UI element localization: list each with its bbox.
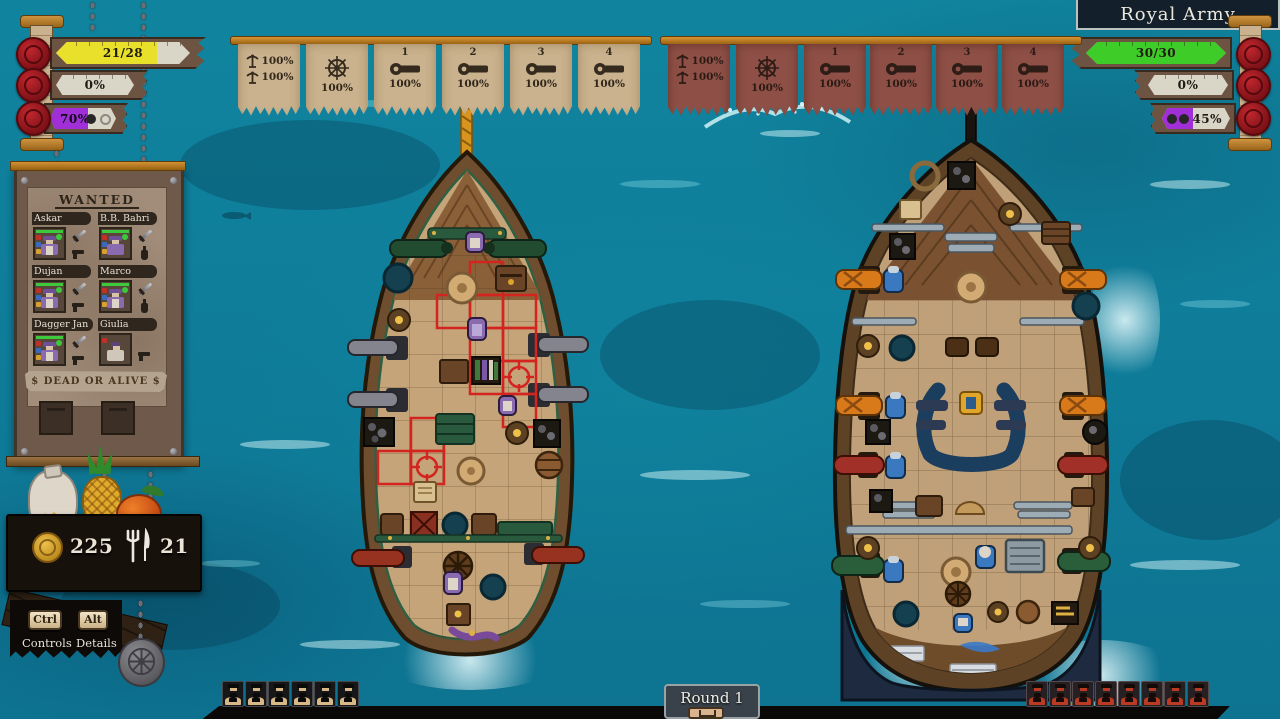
crew-figure <box>466 232 484 252</box>
wanted-title: WANTED <box>28 192 166 207</box>
ally-crew-tile[interactable] <box>268 681 290 707</box>
wanted-entry[interactable]: B.B. Bahri <box>98 212 164 262</box>
wanted-name: Giulia <box>98 318 157 331</box>
cannon-icon <box>592 58 626 78</box>
enemy-crew-tile[interactable] <box>1049 681 1071 707</box>
enemy-crew-tile[interactable] <box>1095 681 1117 707</box>
wheel-icon <box>753 54 781 82</box>
sails-bar-value: 0% <box>56 75 134 95</box>
wanted-portrait <box>99 280 132 313</box>
banner-cannon-3: 3 100% <box>510 44 572 118</box>
seal-hull-icon <box>16 37 51 72</box>
banner-wheel: 100% <box>736 44 798 118</box>
crew-figure <box>444 572 462 594</box>
cannon-icon <box>524 58 558 78</box>
fish <box>222 212 246 219</box>
empty-slot[interactable] <box>101 401 135 435</box>
ally-crew-tile[interactable] <box>245 681 267 707</box>
ally-crew-tile[interactable] <box>337 681 359 707</box>
banner-sails: 100% 100% <box>668 44 730 118</box>
sword-icon <box>139 283 152 295</box>
wanted-entry[interactable]: Dagger Jan <box>32 318 98 368</box>
details-label: Details <box>76 636 117 650</box>
wanted-portrait <box>99 333 132 366</box>
pistol-icon <box>138 352 150 356</box>
banner-cannon-2: 2 100% <box>870 44 932 118</box>
cannon-icon <box>1016 58 1050 78</box>
wanted-portrait <box>99 227 132 260</box>
banner-sails: 100% 100% <box>238 44 300 118</box>
seal-sails-icon <box>1236 68 1271 103</box>
banner-cannon-1: 1 100% <box>804 44 866 118</box>
wanted-entry[interactable]: Marco <box>98 265 164 315</box>
bow-cannon-right[interactable] <box>483 240 546 257</box>
enemy-crew-tile[interactable] <box>1187 681 1209 707</box>
food-count: 21 <box>160 534 189 558</box>
seal-sails-icon <box>16 68 51 103</box>
wanted-portrait <box>33 280 66 313</box>
wanted-entry[interactable]: Askar <box>32 212 98 262</box>
bottle-icon <box>141 250 148 260</box>
compass-medallion <box>118 638 165 687</box>
crew-figure <box>884 266 903 292</box>
enemy-crew-tile[interactable] <box>1072 681 1094 707</box>
game-screen: Round 1 21/28 <box>0 0 1280 719</box>
crew-figure <box>499 396 516 415</box>
seal-morale-icon <box>1236 101 1271 136</box>
resource-panel: 225 21 <box>6 514 202 592</box>
ally-crew-tile[interactable] <box>291 681 313 707</box>
enemy-ship[interactable] <box>818 55 1130 705</box>
enemy-crew-tile[interactable] <box>1118 681 1140 707</box>
sword-icon <box>73 283 86 295</box>
wanted-name: Dagger Jan <box>32 318 93 331</box>
sword-icon <box>139 230 152 242</box>
round-label: Round 1 <box>680 689 744 707</box>
enemy-hull-bar-value: 30/30 <box>1086 42 1226 64</box>
wanted-name: Askar <box>32 212 91 225</box>
wanted-name: Marco <box>98 265 157 278</box>
banner-cannon-3: 3 100% <box>936 44 998 118</box>
controls-label: Controls <box>22 636 72 650</box>
ally-crew-tile[interactable] <box>222 681 244 707</box>
ctrl-key[interactable]: Ctrl <box>28 610 62 630</box>
pistol-icon <box>72 356 84 360</box>
poster-rail <box>10 161 186 171</box>
empty-slot[interactable] <box>39 401 73 435</box>
enemy-crew-tile[interactable] <box>1026 681 1048 707</box>
cannon-icon <box>884 58 918 78</box>
banner-cannon-2: 2 100% <box>442 44 504 118</box>
crew-figure <box>954 614 972 632</box>
sails-bar: 0% <box>50 70 148 100</box>
pistol-icon <box>72 250 84 254</box>
enemy-sails-bar: 0% <box>1134 70 1234 100</box>
wanted-entry[interactable]: Dujan <box>32 265 98 315</box>
player-ship[interactable] <box>335 85 600 685</box>
wanted-poster[interactable]: WANTED Askar B.B. Bahri <box>14 166 184 464</box>
morale-bar: 70% <box>44 103 128 134</box>
hull-bar: 21/28 <box>50 37 206 69</box>
seal-hull-icon <box>1236 37 1271 72</box>
ally-crew-tile[interactable] <box>314 681 336 707</box>
crew-figure <box>886 452 905 478</box>
wanted-portrait <box>33 227 66 260</box>
banner-wheel: 100% <box>306 44 368 118</box>
wanted-name: Dujan <box>32 265 91 278</box>
bottle-icon <box>141 303 148 313</box>
enemy-crew-tile[interactable] <box>1141 681 1163 707</box>
enemy-sails-bar-value: 0% <box>1148 75 1228 95</box>
cannon-icon <box>818 58 852 78</box>
pistol-icon <box>72 303 84 307</box>
cannon-icon <box>388 58 422 78</box>
bow-cannon-left[interactable] <box>390 240 453 257</box>
banner-cannon-4: 4 100% <box>1002 44 1064 118</box>
cannon-icon <box>456 58 490 78</box>
coin-icon <box>32 532 63 563</box>
enemy-morale-bar: 45% <box>1150 103 1236 134</box>
cannon-icon <box>950 58 984 78</box>
port-cannon-red[interactable] <box>352 546 412 568</box>
coins-count: 225 <box>70 534 113 558</box>
hull-bar-value: 21/28 <box>56 42 190 64</box>
banner-cannon-4: 4 100% <box>578 44 640 118</box>
wheel-icon <box>323 54 351 82</box>
sword-icon <box>73 336 86 348</box>
spacebar-key-icon[interactable] <box>688 707 724 719</box>
crew-figure <box>886 392 905 418</box>
sword-icon <box>73 230 86 242</box>
wanted-entry[interactable]: Giulia <box>98 318 164 368</box>
crew-figure <box>884 556 903 582</box>
wanted-portrait <box>33 333 66 366</box>
enemy-hull-bar: 30/30 <box>1070 37 1232 69</box>
starboard-cannon-red[interactable] <box>524 543 584 565</box>
enemy-crew-tile[interactable] <box>1164 681 1186 707</box>
wanted-name: B.B. Bahri <box>98 212 157 225</box>
seal-morale-icon <box>16 101 51 136</box>
food-icon <box>122 528 152 564</box>
crew-figure <box>976 546 995 568</box>
alt-key[interactable]: Alt <box>78 610 108 630</box>
bounty-banner: $ DEAD OR ALIVE $ <box>25 371 167 392</box>
crew-figure <box>468 318 486 340</box>
banner-cannon-1: 1 100% <box>374 44 436 118</box>
